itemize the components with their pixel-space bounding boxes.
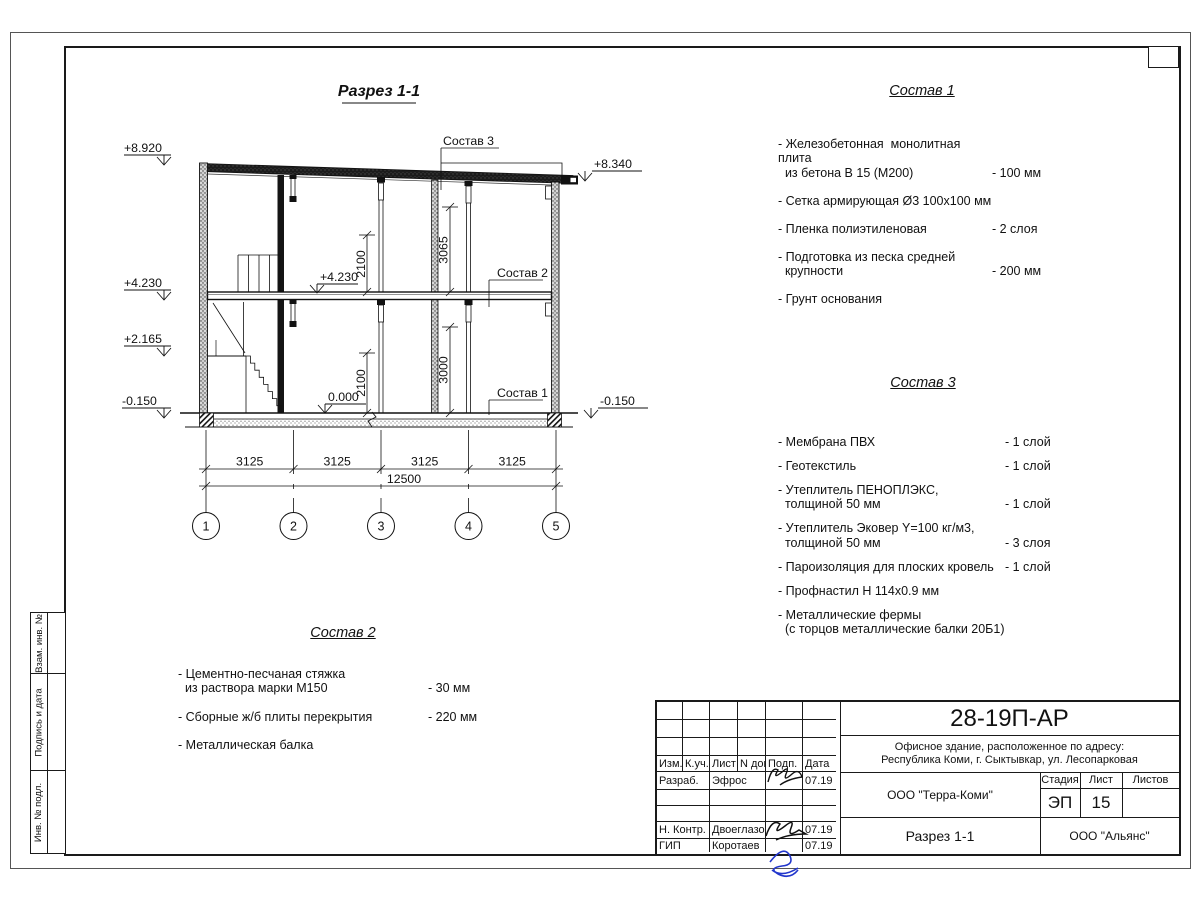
elev-m0150-right: -0.150 xyxy=(600,394,635,408)
list-item: - Профнастил Н 114х0.9 мм xyxy=(778,584,1068,599)
developer-label: Разраб. xyxy=(657,772,710,790)
ncontrol-signature-cell xyxy=(766,822,803,839)
dim-span-1: 3125 xyxy=(236,455,264,469)
developer-name: Эфрос xyxy=(710,772,766,790)
callout-sostav3: Состав 3 xyxy=(443,134,494,148)
gip-date: 07.19 xyxy=(803,839,836,852)
dim-total: 12500 xyxy=(387,472,421,486)
list-item: - Сетка армирующая Ø3 100х100 мм xyxy=(778,194,1066,209)
list-item: - Пленка полиэтиленовая- 2 слоя xyxy=(778,222,1066,237)
developer-date: 07.19 xyxy=(803,772,836,790)
list-item: - Грунт основания xyxy=(778,292,1066,307)
sostav1-list: Состав 1 - Железобетонная монолитная пли… xyxy=(778,84,1066,320)
list-item: - Утеплитель Эковер Y=100 кг/м3, толщино… xyxy=(778,521,1068,550)
gip-signature-cell xyxy=(766,839,803,852)
elev-2165: +2.165 xyxy=(124,332,162,346)
stage-header: Стадия xyxy=(1040,772,1081,789)
sostav2-list: Состав 2 - Цементно-песчаная стяжка из р… xyxy=(178,626,508,767)
elev-8920: +8.920 xyxy=(124,141,162,155)
dim-bottom xyxy=(199,430,563,513)
beam-connector xyxy=(546,303,552,316)
sheets-value xyxy=(1122,788,1179,818)
dim-3000: 3000 xyxy=(437,356,451,384)
dim-vertical-group xyxy=(359,203,458,417)
gip-label: ГИП xyxy=(657,839,710,852)
side-strip-box-vzam: Взам. инв. № xyxy=(30,612,66,675)
side-strip-label-cell: Подпись и дата xyxy=(31,674,48,771)
list-item: - Утеплитель ПЕНОПЛЭКС, толщиной 50 мм- … xyxy=(778,483,1068,512)
axis-4: 4 xyxy=(465,520,472,534)
list-item: - Железобетонная монолитная плита из бет… xyxy=(778,137,1066,181)
side-strip-label: Подпись и дата xyxy=(34,688,45,756)
list-item: - Пароизоляция для плоских кровель- 1 сл… xyxy=(778,560,1068,575)
sostav3-list: Состав 3 - Мембрана ПВХ- 1 слой - Геотек… xyxy=(778,376,1068,646)
side-strip-box-inv: Инв. № подл. xyxy=(30,770,66,854)
callout-sostav2: Состав 2 xyxy=(497,266,548,280)
list-item: - Геотекстиль- 1 слой xyxy=(778,459,1068,474)
col-list: Лист xyxy=(710,756,738,772)
stage-table: Стадия Лист Листов ЭП 15 xyxy=(1040,772,1179,817)
sostav3-title: Состав 3 xyxy=(778,376,1068,391)
title-block: Изм. К.уч. Лист N док. Подп. Дата Разраб… xyxy=(655,700,1181,856)
title-block-right: 28-19П-АР Офисное здание, расположенное … xyxy=(840,702,1179,854)
side-strip-label: Взам. инв. № xyxy=(34,614,45,673)
org-bottom: ООО "Альянс" xyxy=(1040,817,1179,854)
revision-table: Изм. К.уч. Лист N док. Подп. Дата Разраб… xyxy=(657,702,841,854)
gip-name: Коротаев xyxy=(710,839,766,852)
axis-1: 1 xyxy=(203,520,210,534)
roof xyxy=(202,164,578,186)
sheets-header: Листов xyxy=(1122,772,1179,789)
col-data: Дата xyxy=(803,756,836,772)
side-strip-box-podpis: Подпись и дата xyxy=(30,673,66,772)
railing xyxy=(238,255,280,292)
hanger-axis2 xyxy=(290,175,297,327)
col-ndok: N док. xyxy=(738,756,766,772)
list-item: - Металлические фермы (с торцов металлич… xyxy=(778,608,1068,637)
col-izm: Изм. xyxy=(657,756,683,772)
dim-3065: 3065 xyxy=(437,236,451,264)
elev-4230-inner: +4.230 xyxy=(320,270,358,284)
wall-axis1 xyxy=(200,163,208,413)
list-item: - Металлическая балка xyxy=(178,738,508,753)
drawing-title: Разрез 1-1 xyxy=(338,83,420,103)
sostav1-title: Состав 1 xyxy=(778,84,1066,99)
callout-sostav1: Состав 1 xyxy=(497,386,548,400)
doc-number: 28-19П-АР xyxy=(840,702,1179,736)
developer-signature-cell xyxy=(766,772,803,790)
stage-value: ЭП xyxy=(1040,788,1081,818)
col-podp: Подп. xyxy=(766,756,803,772)
ncontrol-name: Двоеглазов xyxy=(710,822,766,839)
list-item: - Мембрана ПВХ- 1 слой xyxy=(778,435,1068,450)
side-strip-label: Инв. № подл. xyxy=(34,782,45,841)
sheet-title: Разрез 1-1 xyxy=(840,817,1041,854)
sostav2-title: Состав 2 xyxy=(178,626,508,641)
dim-span-3: 3125 xyxy=(411,455,439,469)
elev-0000: 0.000 xyxy=(328,390,359,404)
list-item: - Подготовка из песка средней крупности-… xyxy=(778,250,1066,279)
axis-2: 2 xyxy=(290,520,297,534)
wall-axis5 xyxy=(552,182,560,413)
elev-8340: +8.340 xyxy=(594,157,632,171)
sheet-header: Лист xyxy=(1080,772,1123,789)
side-strip-label-cell: Инв. № подл. xyxy=(31,771,48,853)
ncontrol-label: Н. Контр. xyxy=(657,822,710,839)
list-item: - Цементно-песчаная стяжка из раствора м… xyxy=(178,667,508,696)
dim-span-4: 3125 xyxy=(499,455,527,469)
axis-5: 5 xyxy=(553,520,560,534)
floor-slab-2 xyxy=(208,292,552,300)
drawing-title-text: Разрез 1-1 xyxy=(338,83,420,100)
sheet-value: 15 xyxy=(1080,788,1123,818)
dim-span-2: 3125 xyxy=(324,455,352,469)
elev-4230-left: +4.230 xyxy=(124,276,162,290)
org-middle: ООО "Терра-Коми" xyxy=(840,772,1041,818)
col-kuch: К.уч. xyxy=(683,756,710,772)
project-address: Офисное здание, расположенное по адресу:… xyxy=(840,735,1179,773)
axis-3: 3 xyxy=(378,520,385,534)
ncontrol-date: 07.19 xyxy=(803,822,836,839)
section-drawing: Разрез 1-1 xyxy=(95,60,655,560)
side-strip-label-cell: Взам. инв. № xyxy=(31,613,48,674)
stair xyxy=(208,302,282,413)
axis-bubbles: 1 2 3 4 5 xyxy=(193,513,570,540)
drawing-sheet: Взам. инв. № Подпись и дата Инв. № подл. xyxy=(0,0,1200,900)
list-item: - Сборные ж/б плиты перекрытия- 220 мм xyxy=(178,710,508,725)
callouts xyxy=(441,148,562,415)
elev-m0150-left: -0.150 xyxy=(122,394,157,408)
beam-connector xyxy=(546,186,552,199)
corner-code-box xyxy=(1148,46,1179,68)
ground-slab xyxy=(180,412,578,427)
